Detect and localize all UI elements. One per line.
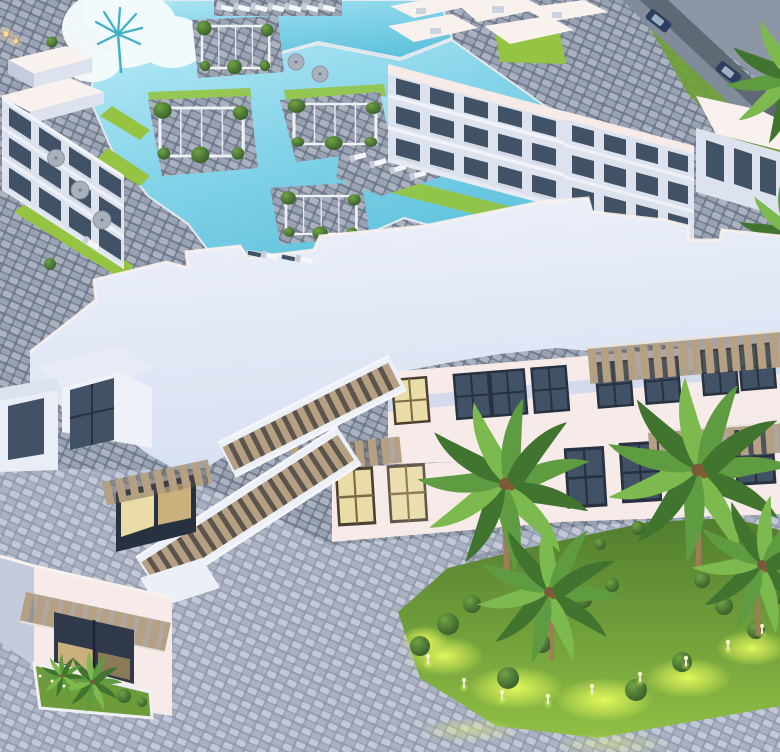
- shrub: [44, 258, 56, 270]
- resort-render: [0, 0, 780, 752]
- shrub: [47, 37, 58, 48]
- resort-render-canvas: [0, 0, 780, 752]
